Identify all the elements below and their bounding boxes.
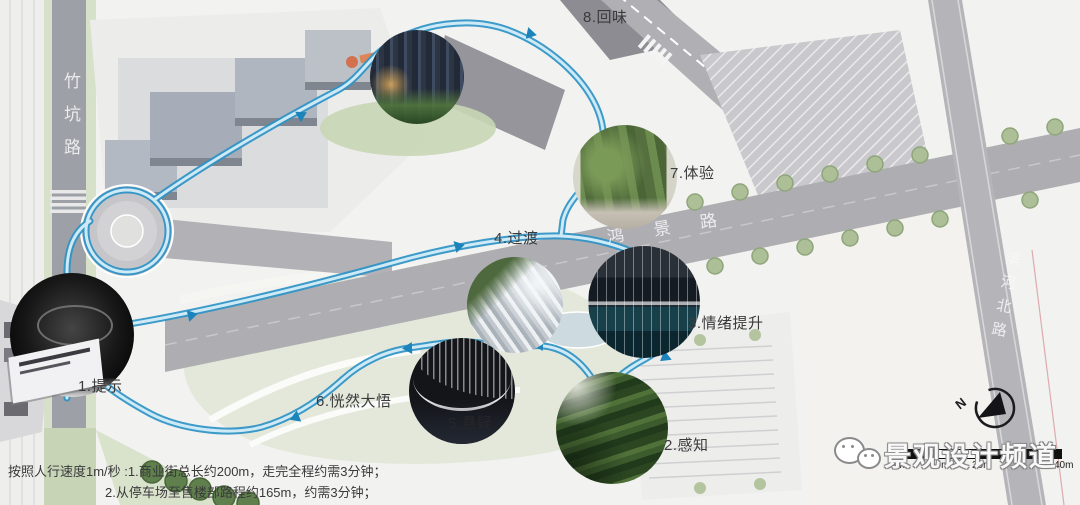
stop-label-2: 2.感知 bbox=[664, 434, 709, 455]
stop-label-5: 5.悬疑 bbox=[448, 412, 493, 433]
watermark: 景观设计频道 bbox=[834, 433, 1058, 475]
stop-label-1: 1.提示 bbox=[78, 375, 123, 396]
photo-stop-8 bbox=[370, 30, 464, 124]
note-line-1: 按照人行速度1m/秒 :1.商业街总长约200m，走完全程约需3分钟； bbox=[8, 461, 387, 482]
stop-label-6: 6.恍然大悟 bbox=[316, 390, 392, 411]
note-line-2: 2.从停车场至售楼部路程约165m，约需3分钟； bbox=[8, 482, 387, 503]
photo-stop-7 bbox=[573, 125, 677, 229]
stop-label-8: 8.回味 bbox=[583, 6, 628, 27]
walking-route bbox=[0, 0, 1080, 505]
photo-stop-6 bbox=[285, 268, 409, 392]
site-plan-diagram: 1.提示 2.感知 3.情绪提升 4.过渡 5.悬疑 6.恍然大悟 7.体验 8… bbox=[0, 0, 1080, 505]
wechat-icon bbox=[834, 433, 882, 475]
watermark-text: 景观设计频道 bbox=[884, 435, 1058, 474]
photo-stop-2 bbox=[556, 372, 668, 484]
stop-label-7: 7.体验 bbox=[670, 162, 715, 183]
canopy-arc bbox=[37, 305, 113, 346]
walking-time-notes: 按照人行速度1m/秒 :1.商业街总长约200m，走完全程约需3分钟； 2.从停… bbox=[8, 461, 387, 503]
stop-label-3: 3.情绪提升 bbox=[688, 312, 764, 333]
road-label-zhukeng: 竹坑路 bbox=[58, 72, 83, 171]
photo-stop-3 bbox=[588, 246, 700, 358]
stop-label-4: 4.过渡 bbox=[494, 227, 539, 248]
